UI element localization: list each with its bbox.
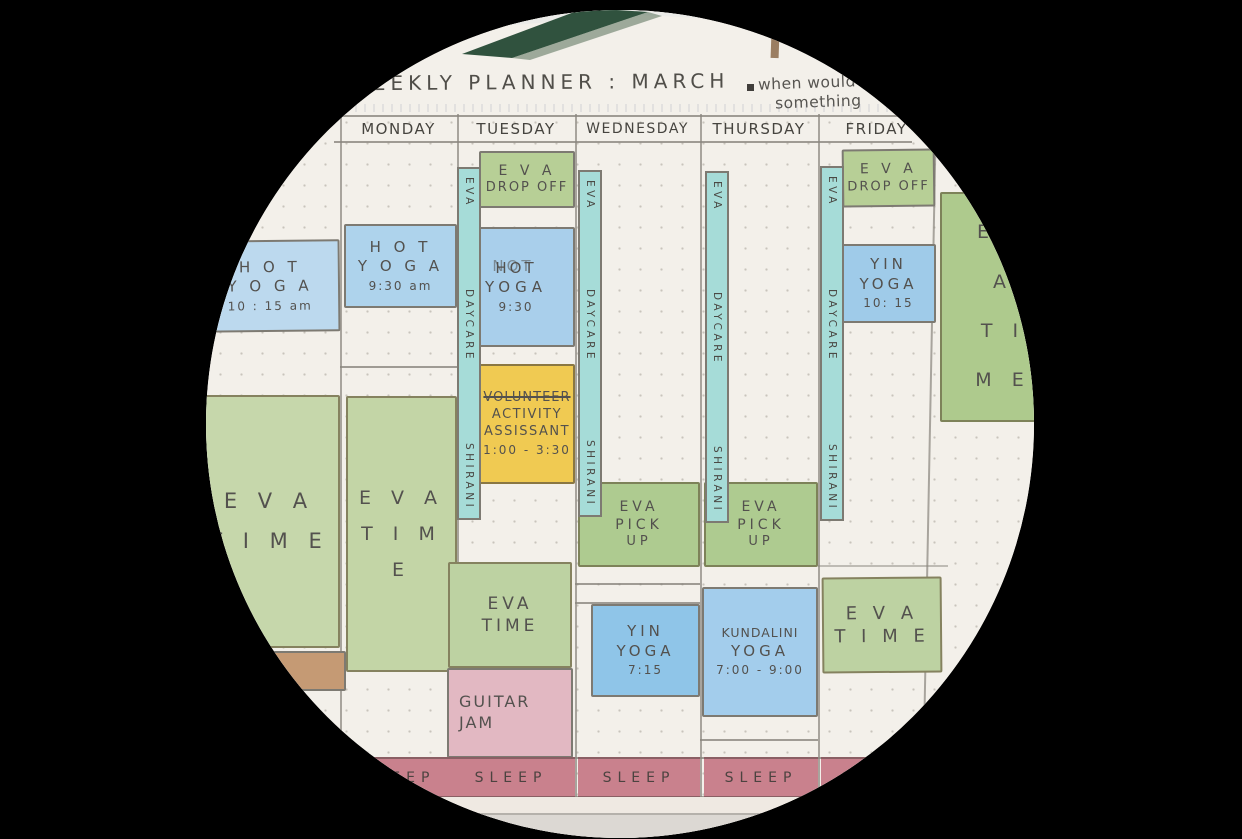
event-yin-yoga-friday: YIN YOGA 10: 15 (841, 244, 936, 323)
event-eva-time-sunday: E V A T I M E (206, 395, 340, 648)
event-title-line: UP (626, 534, 651, 551)
strip-word: EVA (826, 176, 838, 207)
note-bullet-icon (747, 84, 754, 91)
strip-word: DAYCARE (584, 289, 596, 362)
event-title-line: EVA (741, 498, 780, 516)
event-title-line: JAM (459, 713, 494, 734)
event-time: 10 : 15 am (228, 298, 313, 314)
event-title-line: YOGA (616, 642, 674, 662)
column-line-tue-wed (575, 114, 577, 797)
event-guitar-jam-tuesday: GUITAR JAM (447, 668, 573, 758)
event-struck-line: VOLUNTEER (483, 390, 570, 407)
event-title-line: E V A (860, 160, 917, 179)
circular-photo-crop: WEEKLY PLANNER : MARCH when would someth… (206, 10, 1034, 838)
event-title-line: EVA (619, 498, 658, 516)
event-title-line: H O T (370, 238, 432, 258)
event-brown-sunday (262, 651, 346, 691)
event-title-line: T I M E (964, 307, 1034, 406)
event-time: 7:15 (628, 663, 663, 679)
strip-word: SHIRANI (711, 446, 723, 513)
event-hot-yoga-monday: H O T Y O G A 9:30 am (344, 224, 457, 308)
event-title-line: E V A (224, 482, 314, 522)
event-eva-drop-off-friday: E V A DROP OFF (842, 148, 936, 207)
page-title: WEEKLY PLANNER : MARCH (348, 69, 729, 96)
event-title-line: T I M E (348, 516, 455, 588)
event-title-line: YOGA (731, 642, 789, 662)
thursday-row-line (700, 739, 818, 741)
day-header-monday: MONDAY (340, 116, 457, 142)
event-title-line: PICK (737, 516, 785, 534)
event-time: 7:00 - 9:00 (716, 663, 804, 679)
event-title-line: DROP OFF (847, 178, 930, 196)
strip-word: EVA (584, 180, 596, 211)
event-sleep-wednesday: SLEEP (578, 757, 700, 798)
wednesday-row-line-1 (575, 583, 700, 585)
event-title-line: DROP OFF (486, 180, 568, 197)
strip-word: SHIRANI (826, 444, 838, 511)
event-eva-time-monday: E V A T I M E (346, 396, 457, 672)
wall-stick (771, 34, 780, 58)
daycare-strip-tuesday: EVA DAYCARE SHIRANI (457, 167, 481, 520)
ink-bleed-band (346, 104, 902, 112)
event-title-line: YOGA (859, 275, 917, 295)
event-title-line: ASSISSANT (484, 424, 570, 441)
sheet-bottom-edge (206, 797, 1034, 813)
overwritten-word: NOT (492, 257, 533, 277)
event-title-line: E V A (359, 480, 444, 516)
event-sleep-thursday: SLEEP (704, 757, 818, 798)
event-title-line: YIN (870, 255, 907, 275)
event-eva-time-saturday: E V A T I M E (940, 192, 1034, 422)
event-title-line: E V A (499, 162, 556, 180)
event-sleep-tuesday: SLEEP (447, 757, 575, 798)
event-title-line: KUNDALINI (721, 625, 798, 641)
event-time: 9:30 am (369, 279, 433, 295)
daycare-strip-thursday: EVA DAYCARE SHIRANI (705, 171, 729, 523)
note-line-1: when would (758, 72, 856, 93)
event-hot-yoga-sunday: H O T Y O G A 10 : 15 am (206, 239, 340, 332)
day-header-tuesday: TUESDAY (457, 116, 575, 142)
event-sleep-monday: SLEEP (341, 757, 457, 798)
event-title-line: UP (748, 534, 773, 551)
table-surface (206, 813, 1034, 838)
strip-word: SHIRANI (463, 443, 475, 510)
event-title-line: YIN (627, 622, 664, 642)
event-time: 1:00 - 3:30 (483, 443, 571, 459)
strip-word: EVA (711, 181, 723, 212)
friday-row-line (818, 565, 948, 567)
event-yin-yoga-wednesday: YIN YOGA 7:15 (591, 604, 700, 697)
event-title-line: PICK (615, 516, 663, 534)
event-time: 10: 15 (863, 296, 913, 312)
day-header-wednesday: WEDNESDAY (575, 116, 700, 142)
daycare-strip-friday: EVA DAYCARE SHIRANI (820, 166, 844, 521)
strip-word: DAYCARE (826, 289, 838, 362)
event-volunteer-activity-tuesday: VOLUNTEER ACTIVITY ASSISSANT 1:00 - 3:30 (479, 364, 575, 484)
event-sleep-friday: SLEEP (821, 757, 935, 798)
daycare-strip-wednesday: EVA DAYCARE SHIRANI (578, 170, 602, 517)
event-title-line: ACTIVITY (492, 407, 562, 424)
event-title-line: TIME (482, 615, 539, 637)
event-time: 9:30 (499, 300, 534, 316)
event-eva-drop-off-tuesday: E V A DROP OFF (479, 151, 575, 208)
day-header-thursday: THURSDAY (700, 116, 818, 142)
monday-row-line (340, 366, 457, 368)
event-title-line: EVA (488, 593, 533, 615)
strip-word: DAYCARE (711, 292, 723, 365)
event-title-line: Y O G A (227, 277, 312, 297)
event-title-line: T I M E (209, 522, 328, 562)
event-kundalini-yoga-thursday: KUNDALINI YOGA 7:00 - 9:00 (702, 587, 818, 717)
event-eva-time-friday: E V A T I M E (822, 576, 943, 673)
planner-photo: WEEKLY PLANNER : MARCH when would someth… (206, 10, 1034, 838)
event-title-line: Y O G A (358, 257, 443, 277)
strip-word: SHIRANI (584, 440, 596, 507)
event-title-line: T I M E (834, 625, 930, 649)
event-title-line: E V A (964, 208, 1034, 307)
event-eva-time-tuesday: EVA TIME (448, 562, 572, 668)
day-header-friday: FRIDAY (818, 116, 935, 142)
strip-word: DAYCARE (463, 289, 475, 362)
event-title-line: GUITAR (459, 692, 530, 713)
event-title-line: H O T (239, 257, 301, 277)
strip-word: EVA (463, 177, 475, 208)
event-title-line: YOGA (485, 278, 547, 298)
event-title-line: NOT HOT (495, 259, 536, 279)
event-title-line: E V A (846, 601, 919, 625)
